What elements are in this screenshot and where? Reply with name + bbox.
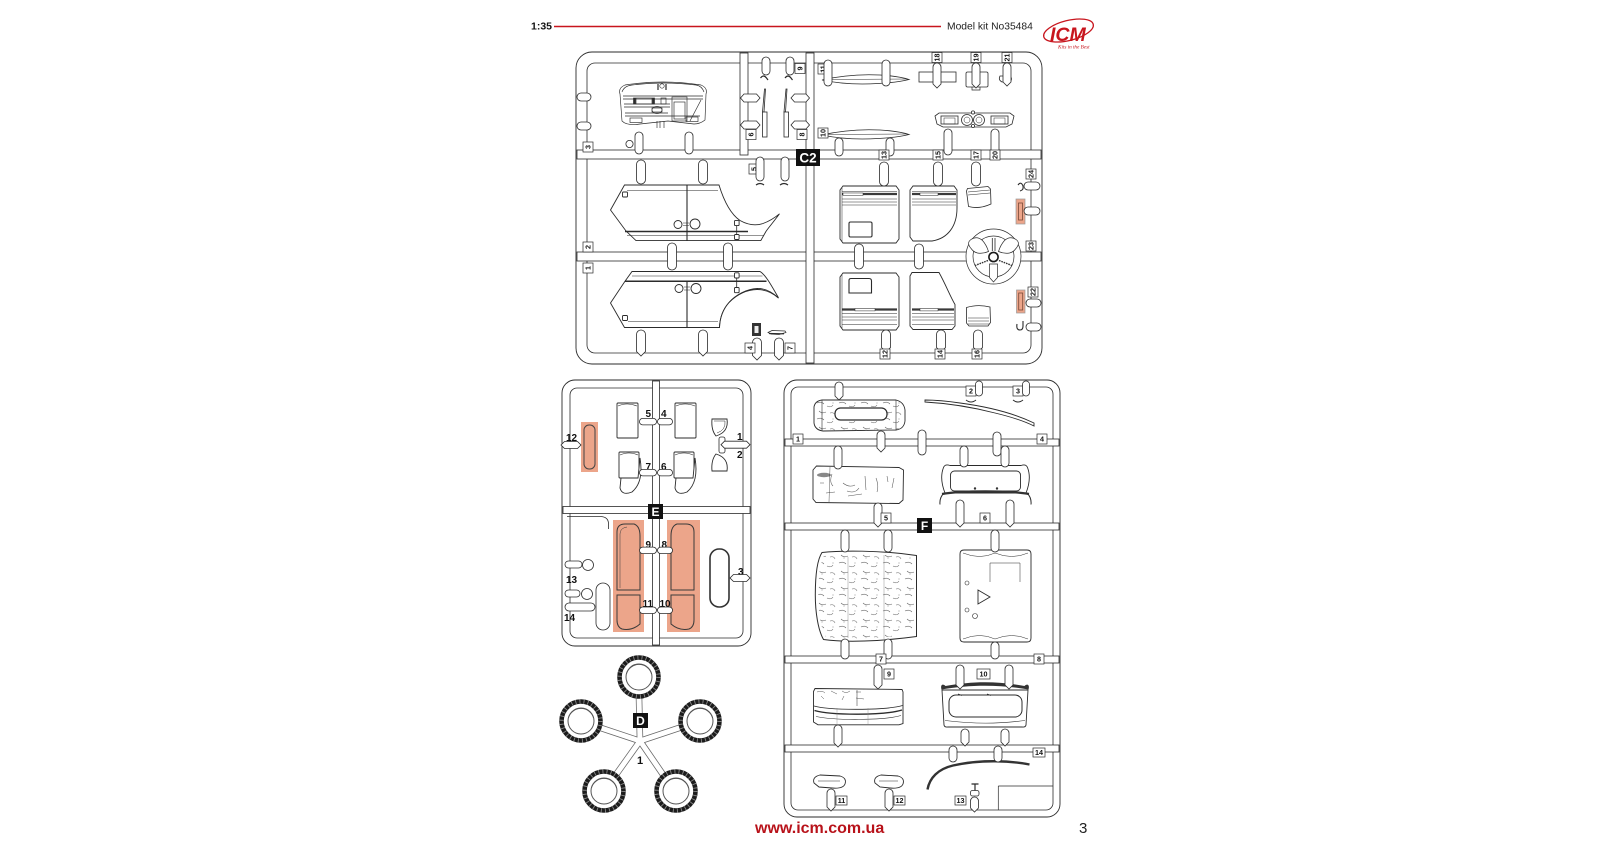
svg-text:9: 9 <box>887 670 891 679</box>
svg-text:4: 4 <box>1040 435 1044 444</box>
svg-text:13: 13 <box>957 796 965 805</box>
svg-text:3: 3 <box>1079 820 1087 837</box>
svg-text:www.icm.com.ua: www.icm.com.ua <box>754 820 884 837</box>
svg-text:13: 13 <box>566 575 578 586</box>
svg-text:C2: C2 <box>799 150 816 165</box>
svg-text:Model kit No35484: Model kit No35484 <box>947 22 1033 33</box>
svg-text:12: 12 <box>881 350 890 358</box>
svg-text:8: 8 <box>798 133 807 137</box>
svg-text:20: 20 <box>991 151 1000 159</box>
svg-text:7: 7 <box>879 655 883 664</box>
svg-text:11: 11 <box>838 796 846 805</box>
svg-text:F: F <box>921 519 928 533</box>
svg-text:6: 6 <box>747 133 756 137</box>
svg-text:15: 15 <box>934 151 943 159</box>
svg-text:21: 21 <box>1003 54 1012 62</box>
svg-text:1: 1 <box>584 266 593 270</box>
svg-text:16: 16 <box>973 350 982 358</box>
svg-text:6: 6 <box>983 514 987 523</box>
svg-text:2: 2 <box>969 387 973 396</box>
svg-text:5: 5 <box>884 514 888 523</box>
svg-text:3: 3 <box>1016 387 1020 396</box>
svg-text:10: 10 <box>819 129 828 137</box>
svg-text:3: 3 <box>584 145 593 149</box>
svg-text:17: 17 <box>972 151 981 159</box>
svg-text:9: 9 <box>796 67 805 71</box>
svg-text:10: 10 <box>980 670 988 679</box>
svg-text:18: 18 <box>933 54 942 62</box>
svg-text:1: 1 <box>637 755 643 767</box>
svg-text:14: 14 <box>936 350 945 358</box>
svg-text:7: 7 <box>786 346 795 350</box>
svg-text:13: 13 <box>880 151 889 159</box>
svg-text:22: 22 <box>1029 288 1038 296</box>
svg-text:19: 19 <box>972 54 981 62</box>
svg-text:14: 14 <box>1035 748 1043 757</box>
svg-text:2: 2 <box>584 245 593 249</box>
svg-text:D: D <box>636 714 645 728</box>
svg-text:8: 8 <box>1037 655 1041 664</box>
svg-text:4: 4 <box>746 346 755 350</box>
svg-text:E: E <box>651 505 659 519</box>
svg-text:24: 24 <box>1027 170 1036 178</box>
svg-text:12: 12 <box>896 796 904 805</box>
svg-text:1:35: 1:35 <box>531 21 552 33</box>
svg-text:2: 2 <box>737 450 743 461</box>
svg-text:ICM: ICM <box>1050 24 1087 46</box>
svg-text:Kits in the Best: Kits in the Best <box>1057 45 1090 51</box>
svg-text:1: 1 <box>796 435 800 444</box>
svg-text:14: 14 <box>564 613 576 624</box>
svg-text:23: 23 <box>1027 242 1036 250</box>
